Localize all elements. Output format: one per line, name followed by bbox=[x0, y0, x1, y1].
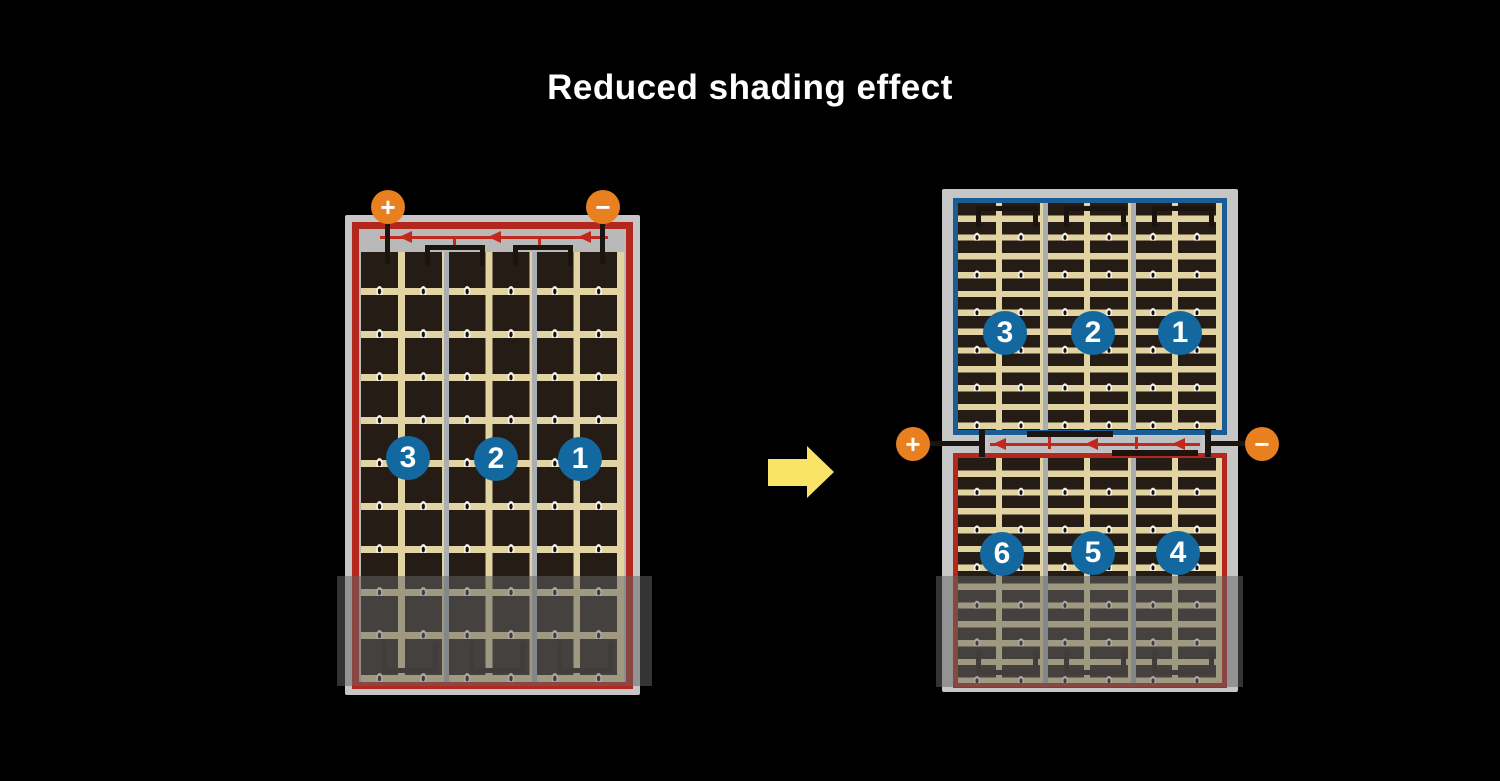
minus-terminal-icon: − bbox=[1245, 427, 1279, 461]
diode-bus-tick bbox=[1135, 437, 1138, 449]
string-badge: 4 bbox=[1156, 531, 1200, 575]
terminal-wire bbox=[928, 441, 985, 446]
shading-overlay bbox=[936, 576, 1243, 687]
top-jumper-wire bbox=[1152, 206, 1214, 227]
plus-terminal-icon: + bbox=[896, 427, 930, 461]
string-badge: 2 bbox=[474, 437, 518, 481]
string-divider bbox=[1131, 203, 1136, 430]
wire-end-cap bbox=[979, 430, 985, 457]
bypass-diode-icon bbox=[578, 231, 591, 243]
top-jumper-wire bbox=[425, 245, 485, 266]
string-badge: 1 bbox=[558, 437, 602, 481]
bypass-diode-icon bbox=[1085, 438, 1098, 450]
plus-terminal-icon: + bbox=[371, 190, 405, 224]
terminal-wire bbox=[385, 222, 390, 264]
series-link-wire bbox=[1027, 431, 1113, 437]
string-divider bbox=[1043, 203, 1048, 430]
top-jumper-wire bbox=[976, 206, 1038, 227]
diagram-canvas: Reduced shading effect 3 2 1 + − bbox=[0, 0, 1500, 781]
string-badge: 3 bbox=[983, 311, 1027, 355]
bypass-diode-icon bbox=[488, 231, 501, 243]
diagram-title: Reduced shading effect bbox=[0, 68, 1500, 108]
string-badge: 3 bbox=[386, 436, 430, 480]
bypass-diode-icon bbox=[1172, 438, 1185, 450]
bypass-diode-icon bbox=[993, 438, 1006, 450]
diode-bus-tick bbox=[1048, 437, 1051, 449]
shading-overlay bbox=[337, 576, 652, 686]
string-badge: 5 bbox=[1071, 531, 1115, 575]
minus-terminal-icon: − bbox=[586, 190, 620, 224]
string-badge: 6 bbox=[980, 532, 1024, 576]
string-badge: 1 bbox=[1158, 311, 1202, 355]
string-badge: 2 bbox=[1071, 311, 1115, 355]
terminal-wire bbox=[600, 222, 605, 264]
top-jumper-wire bbox=[1064, 206, 1126, 227]
terminal-wire bbox=[1206, 441, 1248, 446]
top-jumper-wire bbox=[513, 245, 573, 266]
series-link-wire bbox=[1112, 450, 1198, 456]
bypass-diode-icon bbox=[399, 231, 412, 243]
wire-end-cap bbox=[1205, 430, 1211, 457]
